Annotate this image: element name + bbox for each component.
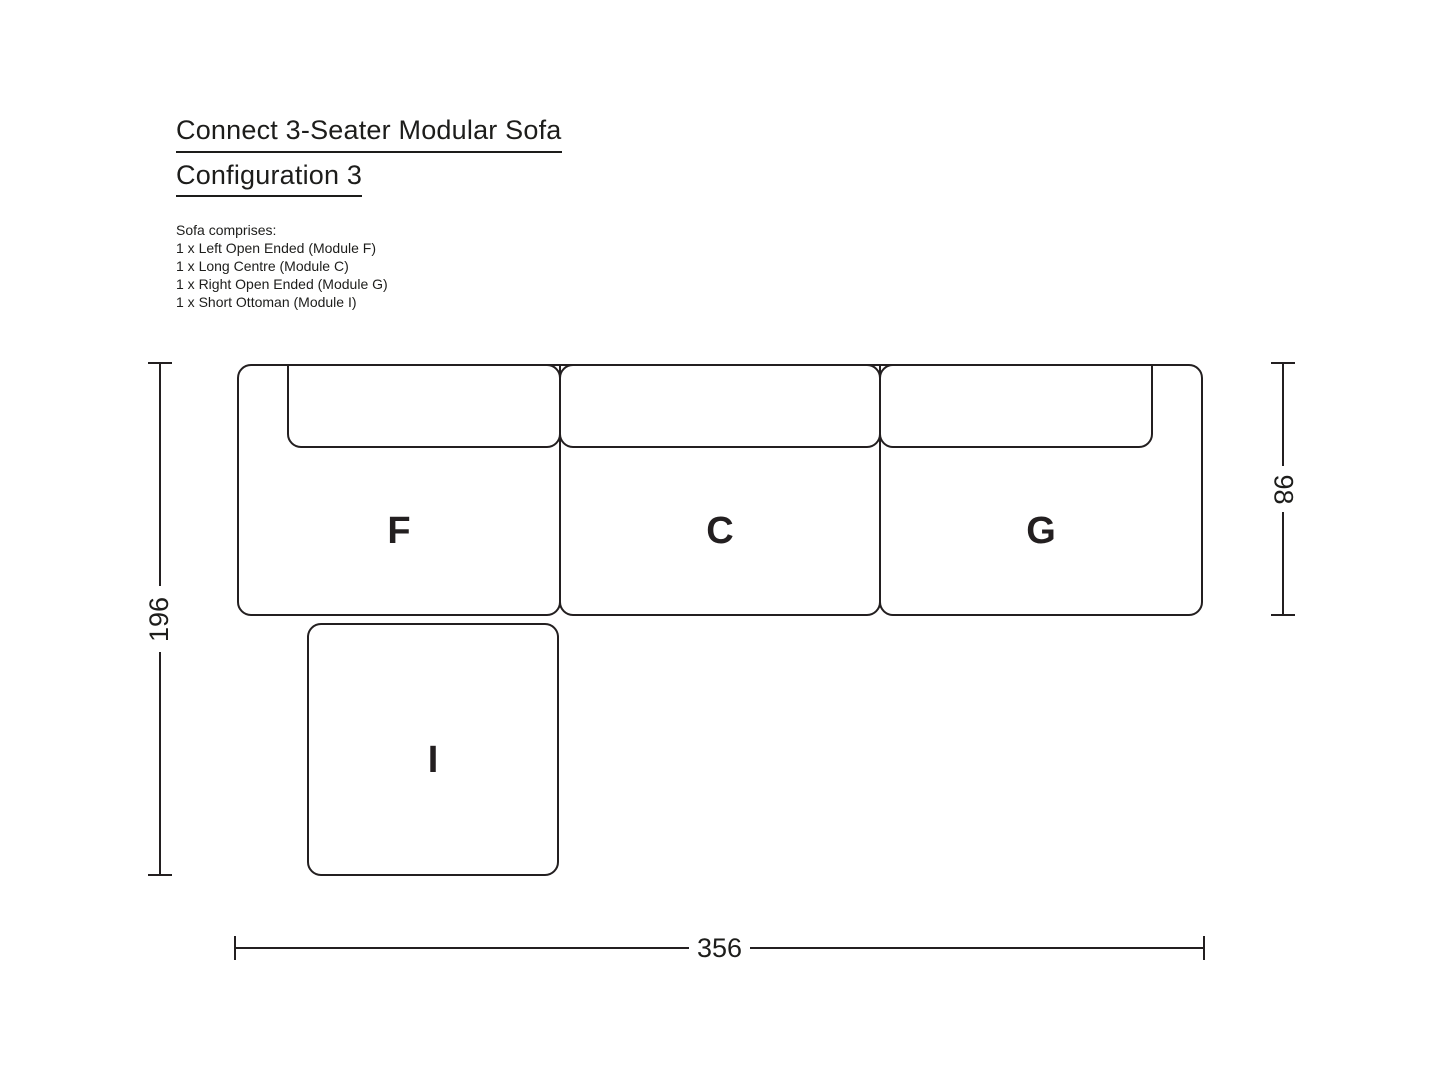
module-g-backrest bbox=[879, 364, 1153, 448]
module-f-backrest bbox=[287, 364, 561, 448]
sofa-configuration-diagram: F C G I 196 98 bbox=[0, 0, 1445, 1087]
dimension-value-total-depth: 196 bbox=[145, 596, 176, 641]
dimension-seat-depth: 98 bbox=[1271, 362, 1295, 616]
dimension-tick bbox=[148, 874, 172, 876]
dimension-line: 196 bbox=[148, 362, 172, 876]
dimension-value-seat-depth: 98 bbox=[1268, 474, 1299, 504]
spec-sheet: Connect 3-Seater Modular Sofa Configurat… bbox=[0, 0, 1445, 1087]
dimension-total-width: 356 bbox=[234, 936, 1205, 960]
module-c-backrest bbox=[559, 364, 881, 448]
module-i-label: I bbox=[307, 623, 559, 876]
dimension-total-depth: 196 bbox=[148, 362, 172, 876]
module-f-label: F bbox=[237, 448, 561, 614]
dimension-tick bbox=[1203, 936, 1205, 960]
dimension-line: 98 bbox=[1271, 362, 1295, 616]
module-g-label: G bbox=[879, 448, 1203, 614]
dimension-tick bbox=[1271, 614, 1295, 616]
dimension-value-total-width: 356 bbox=[689, 933, 750, 964]
dimension-tick bbox=[234, 936, 236, 960]
module-c-label: C bbox=[559, 448, 881, 614]
